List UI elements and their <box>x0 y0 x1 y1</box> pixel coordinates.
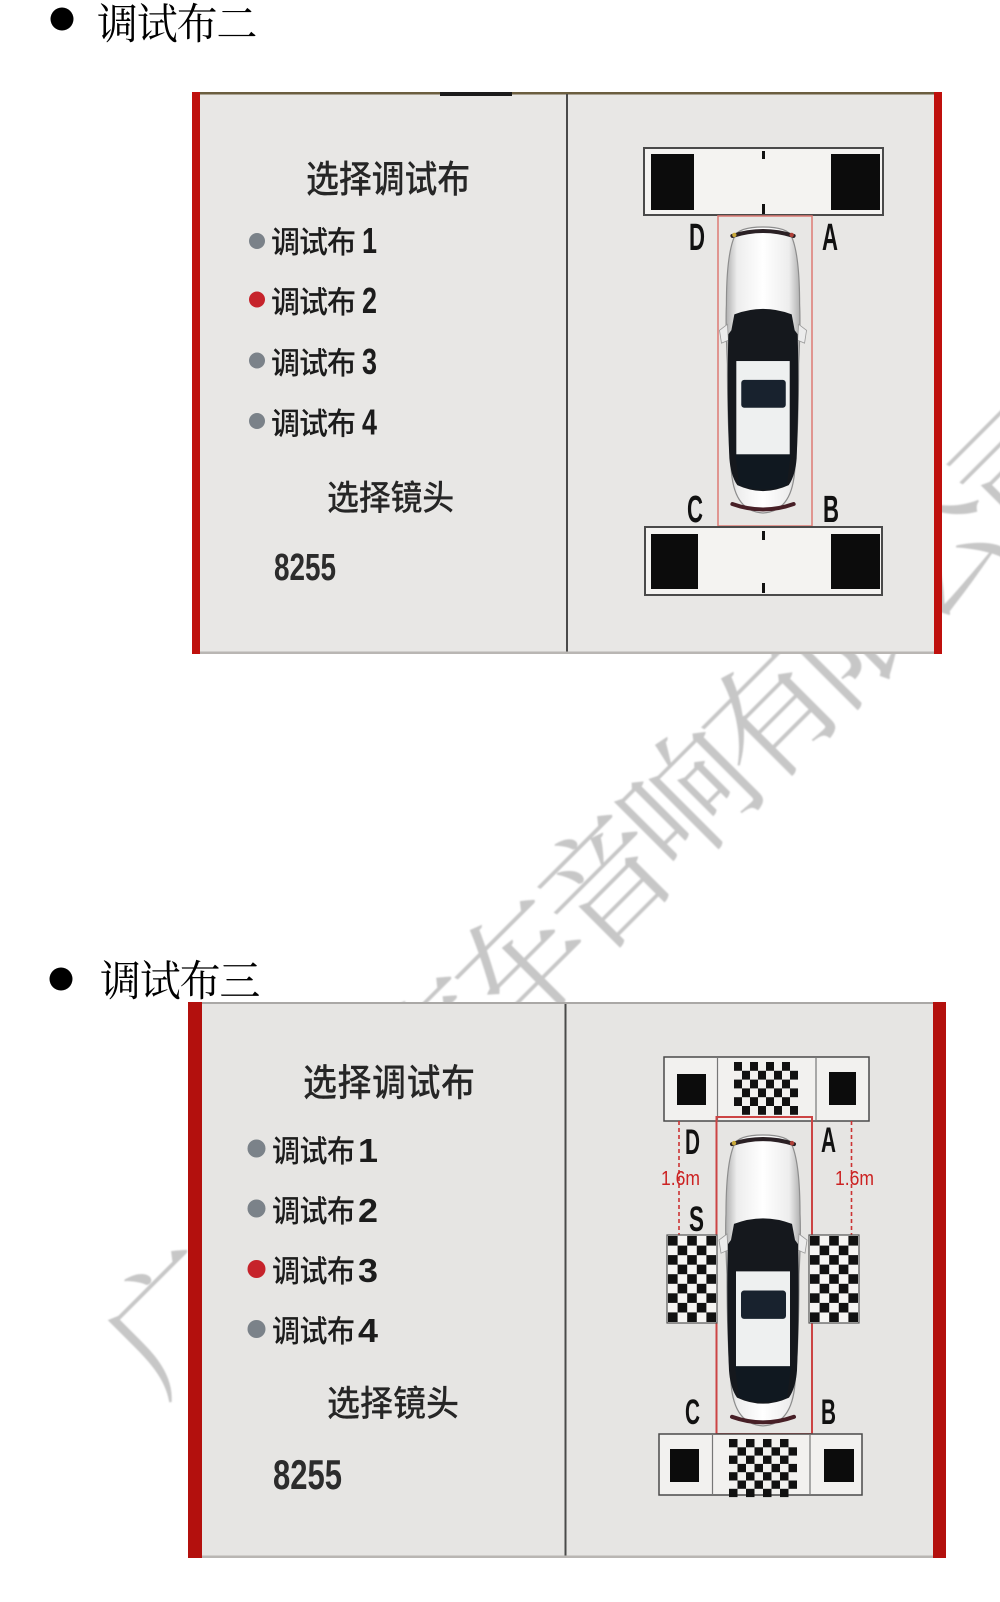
svg-text:3: 3 <box>358 1252 378 1289</box>
svg-text:C: C <box>685 1393 700 1432</box>
svg-text:2: 2 <box>362 280 377 321</box>
svg-text:C: C <box>687 489 703 531</box>
svg-text:D: D <box>689 217 705 259</box>
svg-text:S: S <box>689 1200 704 1239</box>
svg-text:1: 1 <box>362 220 377 261</box>
svg-text:8255: 8255 <box>273 1451 342 1498</box>
svg-text:1.6m: 1.6m <box>835 1168 874 1190</box>
svg-text:8255: 8255 <box>274 547 336 589</box>
svg-text:4: 4 <box>362 402 377 443</box>
svg-text:B: B <box>821 1393 836 1432</box>
svg-text:3: 3 <box>362 341 377 382</box>
svg-text:A: A <box>821 1121 836 1160</box>
svg-text:B: B <box>823 489 839 531</box>
svg-text:1: 1 <box>358 1132 378 1169</box>
svg-text:4: 4 <box>358 1312 379 1349</box>
svg-text:A: A <box>822 217 838 259</box>
svg-text:1.6m: 1.6m <box>661 1168 700 1190</box>
svg-text:2: 2 <box>358 1192 378 1229</box>
svg-text:D: D <box>685 1123 700 1162</box>
